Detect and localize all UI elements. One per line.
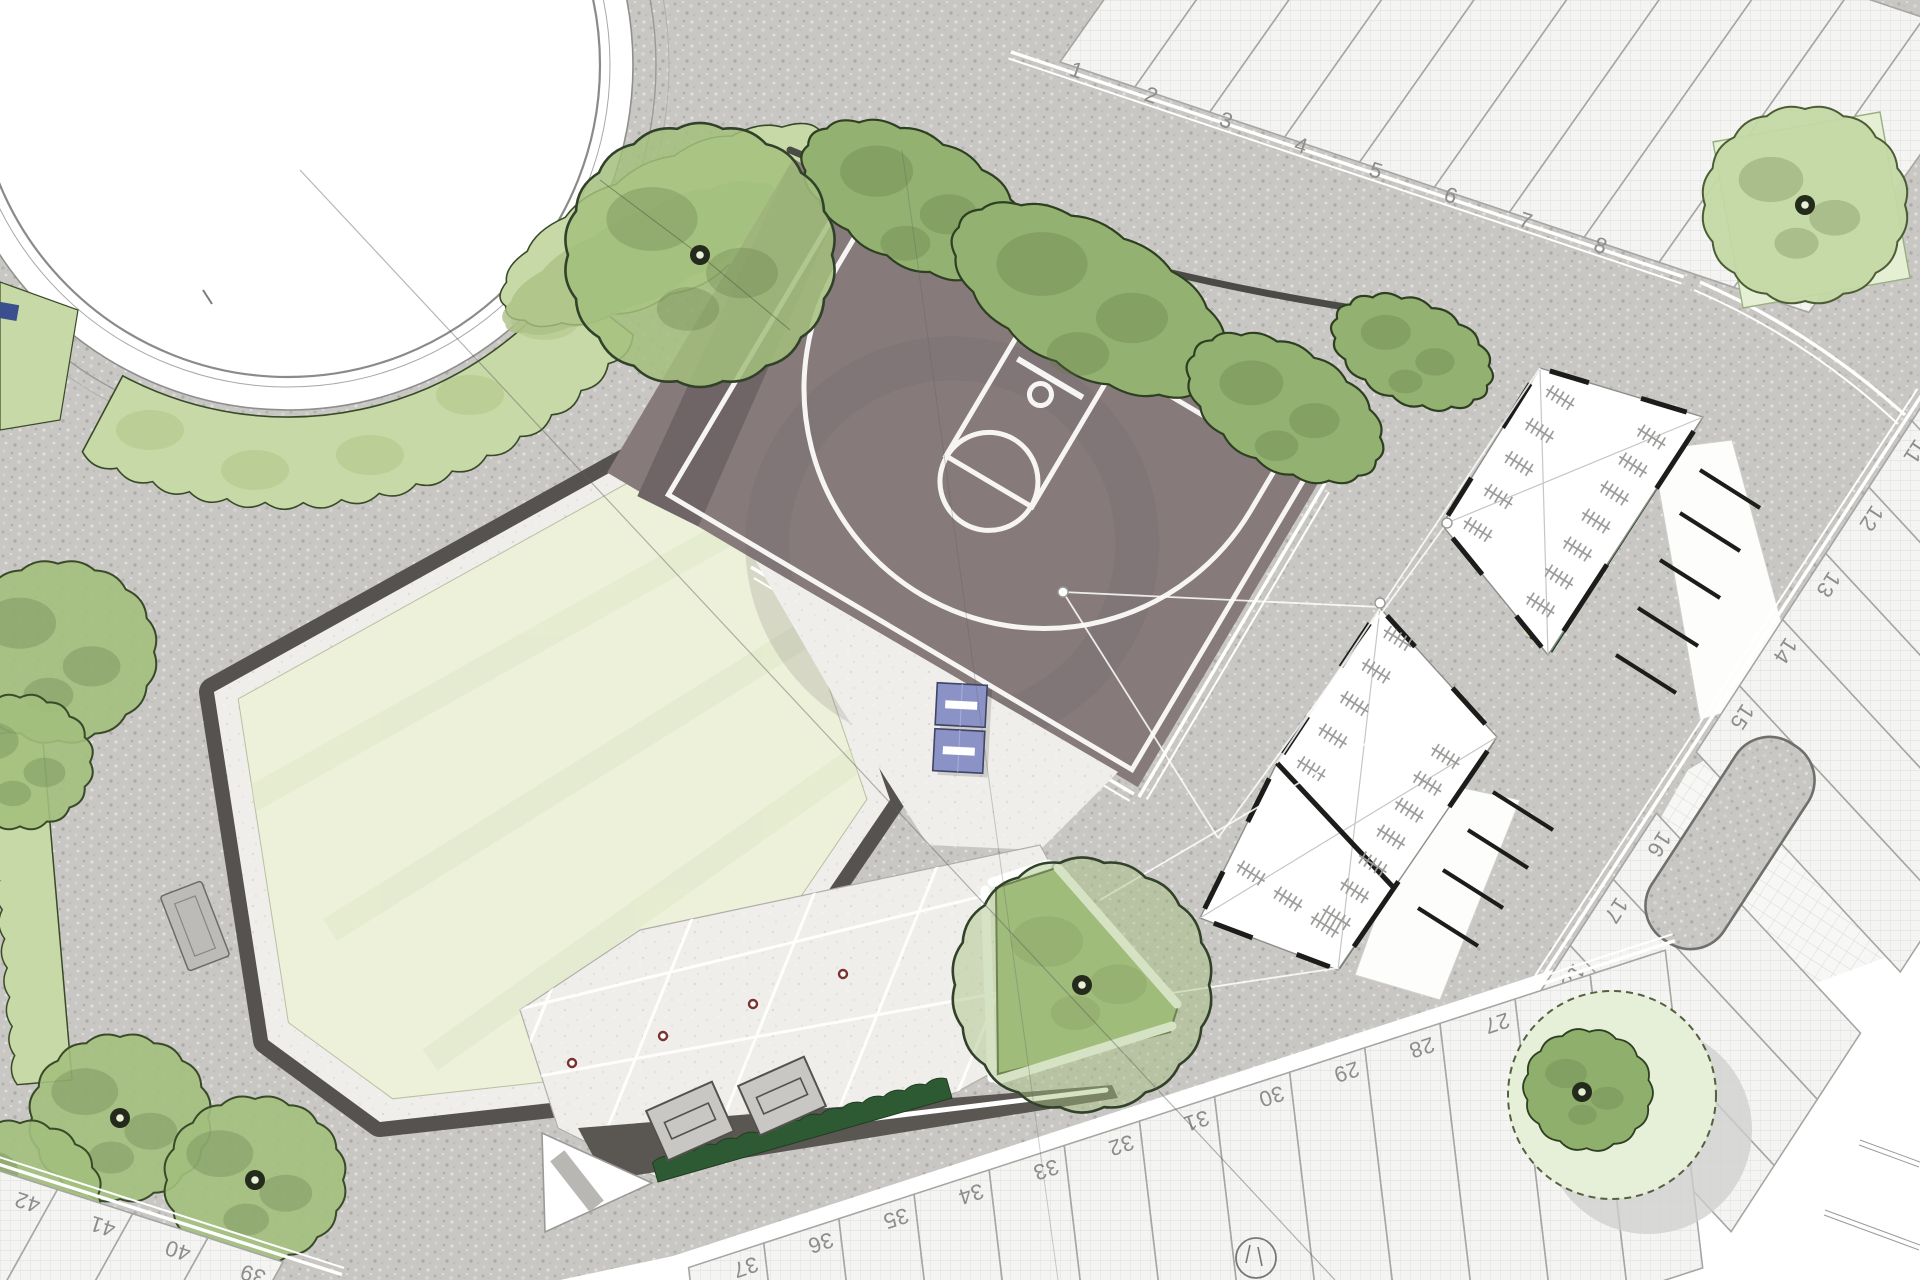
large-tree-symbol <box>565 123 834 387</box>
site-plan-stage: 1234567811121314151617182728293031323334… <box>0 0 1920 1280</box>
grid-node <box>659 1032 667 1040</box>
seating-tree <box>953 857 1211 1112</box>
grid-node <box>1442 518 1452 528</box>
grid-node <box>1375 598 1385 608</box>
grid-node <box>568 1059 576 1067</box>
grid-node <box>749 1000 757 1008</box>
grid-node <box>1058 587 1068 597</box>
table-tennis-tables <box>933 683 993 778</box>
grid-node <box>839 970 847 978</box>
site-plan-drawing: 1234567811121314151617182728293031323334… <box>0 0 1920 1280</box>
